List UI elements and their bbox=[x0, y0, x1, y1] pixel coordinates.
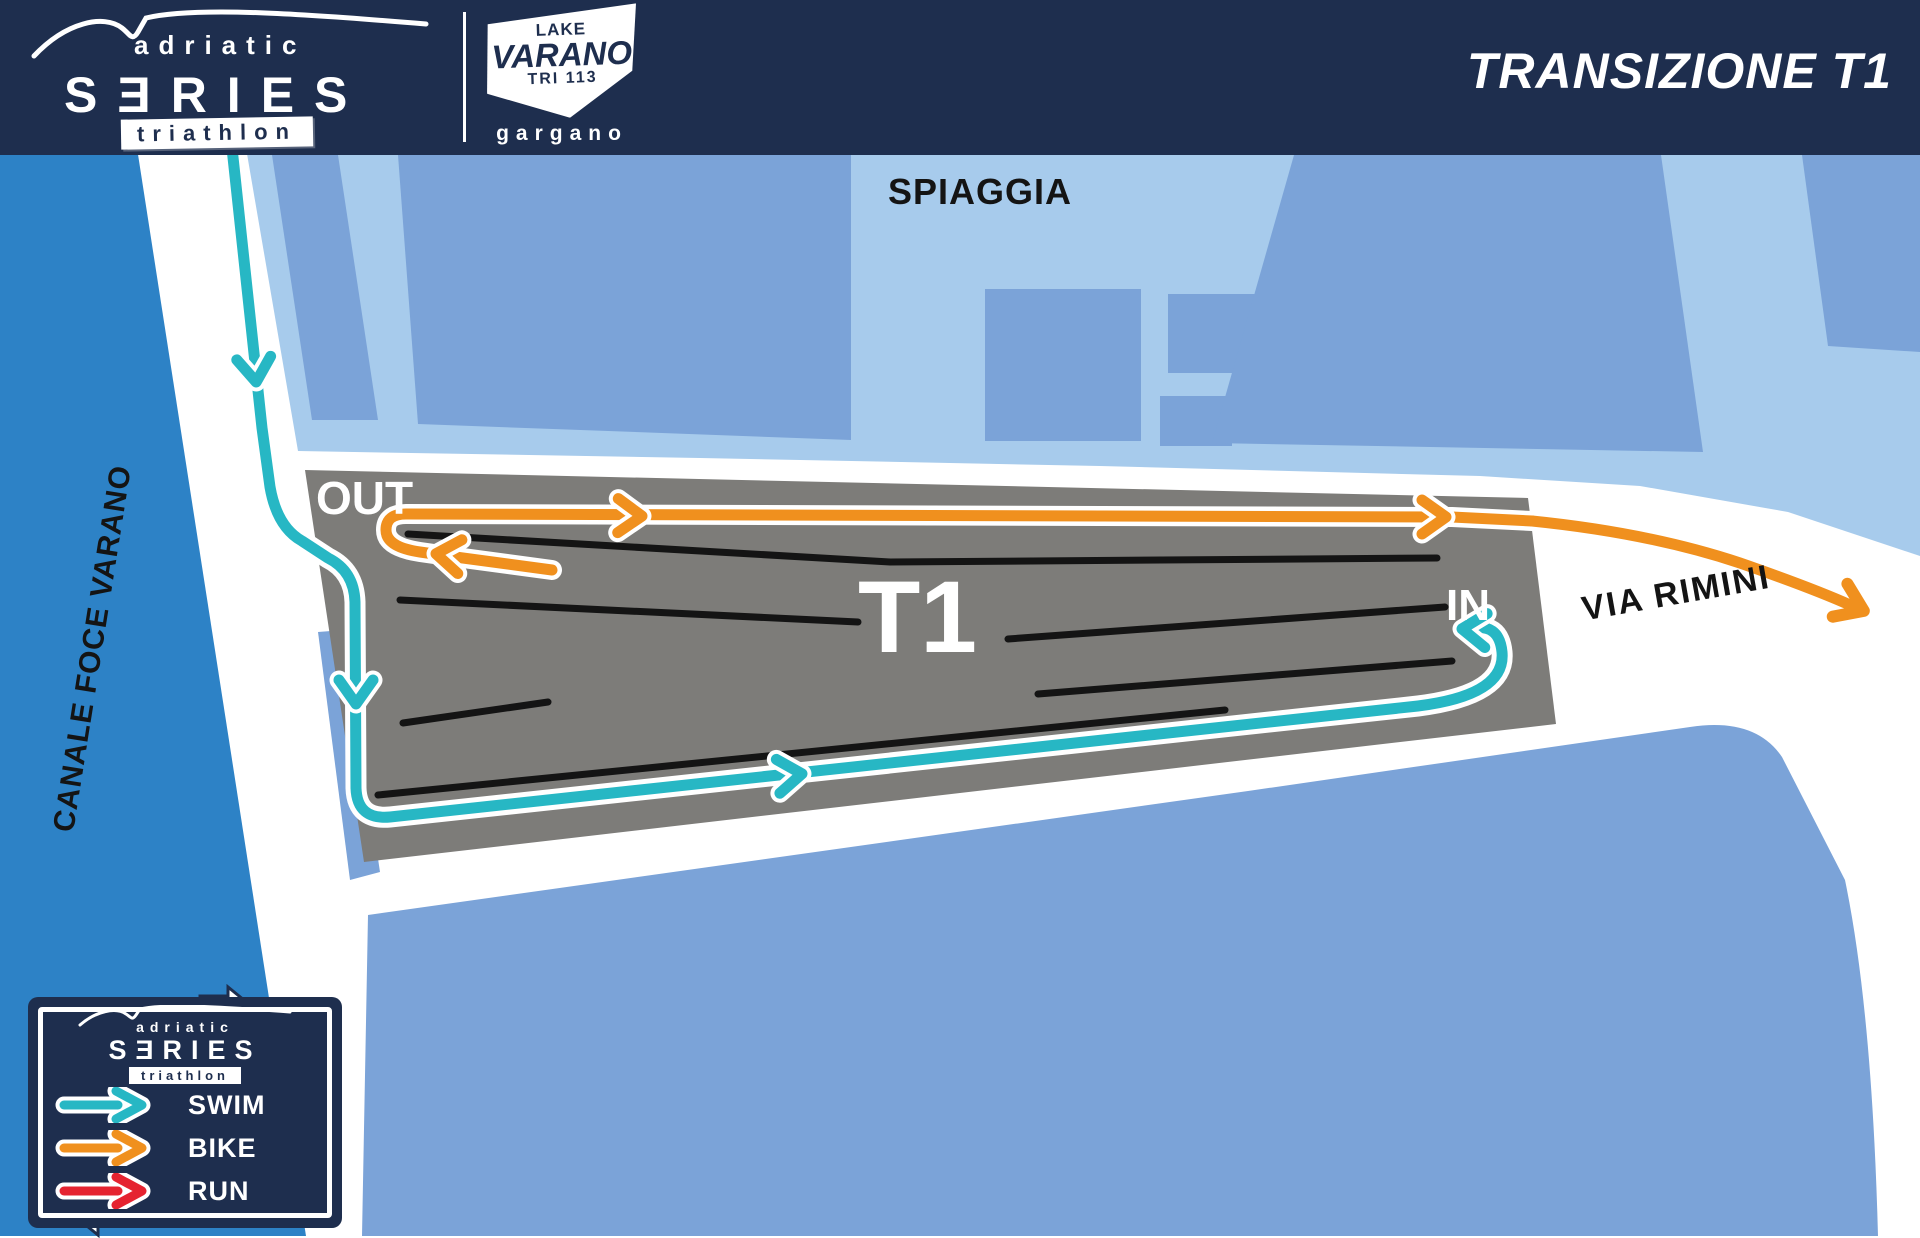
building-block bbox=[1212, 155, 1703, 452]
building-block bbox=[985, 289, 1141, 441]
legend-label-swim: SWIM bbox=[188, 1090, 266, 1121]
road-label: VIA RIMINI bbox=[1579, 558, 1773, 629]
t1-zone-label: T1 bbox=[858, 560, 977, 674]
legend-box: adriatic SƎRIES triathlon SWIM BIKE RUN bbox=[28, 997, 342, 1228]
header-divider bbox=[463, 12, 466, 142]
badge-line-varano: VARANO bbox=[491, 38, 633, 73]
in-label: IN bbox=[1446, 581, 1490, 630]
legend-row-run: RUN bbox=[54, 1173, 324, 1209]
legend-row-bike: BIKE bbox=[54, 1130, 324, 1166]
legend-brand-triathlon: triathlon bbox=[129, 1067, 241, 1084]
legend-brand-triathlon-strip: triathlon bbox=[28, 1067, 342, 1085]
legend-label-bike: BIKE bbox=[188, 1133, 257, 1164]
bike-legend-arrow-icon bbox=[54, 1130, 174, 1166]
brand-word-series: SƎRIES bbox=[64, 66, 367, 124]
adriatic-series-logo: adriatic SƎRIES triathlon bbox=[26, 6, 456, 152]
brand-word-triathlon: triathlon bbox=[121, 116, 313, 149]
badge-line-tri113: TRI 113 bbox=[527, 69, 598, 89]
badge-region-gargano: gargano bbox=[486, 122, 638, 146]
building-block bbox=[398, 155, 851, 440]
legend-brand-adriatic: adriatic bbox=[28, 1019, 342, 1035]
out-label: OUT bbox=[316, 472, 413, 524]
beach-label: SPIAGGIA bbox=[888, 171, 1072, 212]
run-legend-arrow-icon bbox=[54, 1173, 174, 1209]
page-title: TRANSIZIONE T1 bbox=[1467, 42, 1892, 100]
legend-label-run: RUN bbox=[188, 1176, 250, 1207]
lake-varano-badge: LAKE VARANO TRI 113 bbox=[484, 3, 640, 120]
legend-row-swim: SWIM bbox=[54, 1087, 324, 1123]
header-bar: adriatic SƎRIES triathlon LAKE VARANO TR… bbox=[0, 0, 1920, 155]
swim-legend-arrow-icon bbox=[54, 1087, 174, 1123]
brand-word-adriatic: adriatic bbox=[134, 30, 307, 61]
legend-brand-series: SƎRIES bbox=[28, 1035, 342, 1066]
